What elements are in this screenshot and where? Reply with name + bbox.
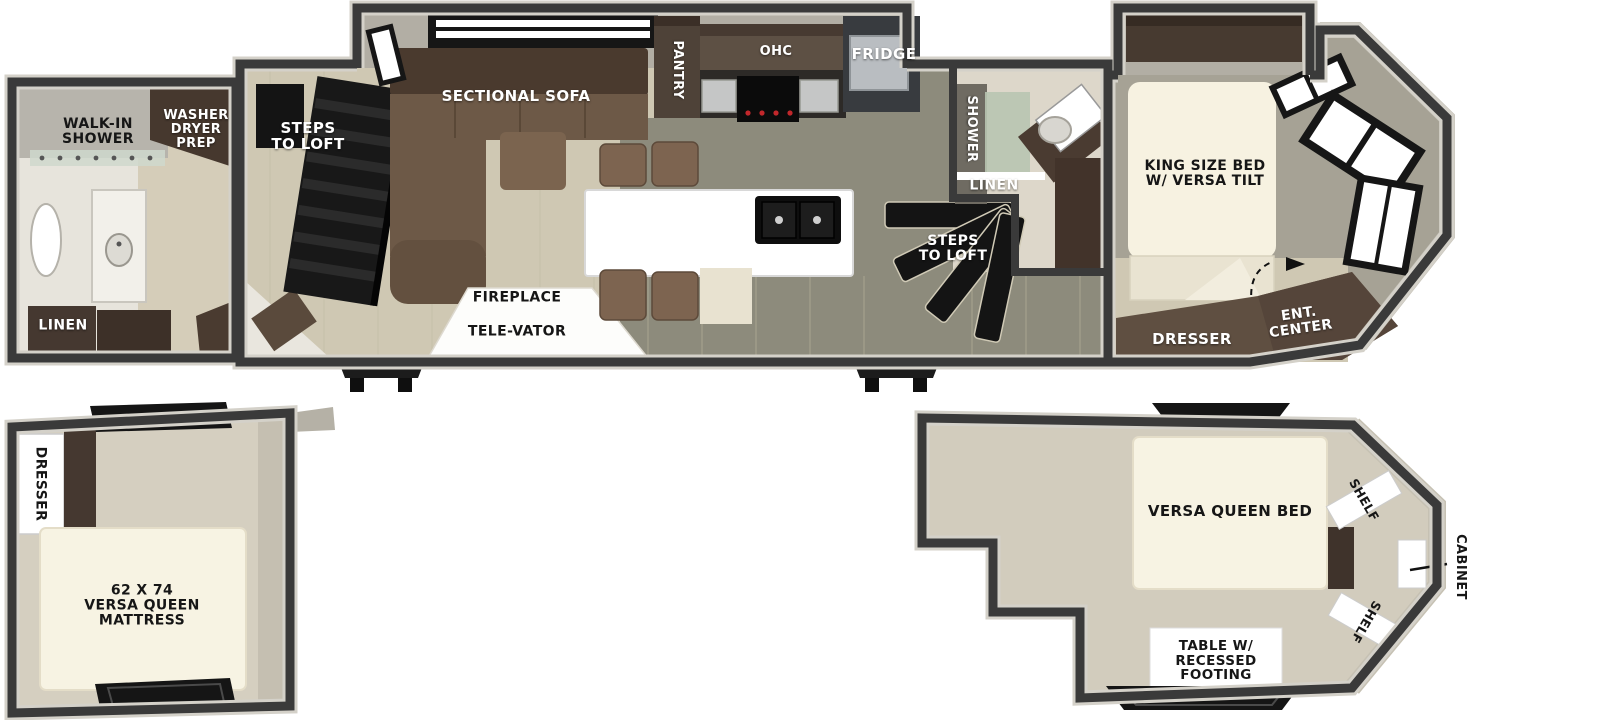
front-loft (922, 403, 1447, 710)
rv-floorplan-diagram: WALK-IN SHOWER WASHER DRYER PREP LINEN S… (0, 0, 1600, 720)
floorplan-graphic (0, 0, 1600, 720)
ottoman (500, 132, 566, 190)
sink (106, 234, 132, 266)
king-bed-mattress (1128, 82, 1276, 258)
loft-dresser (16, 434, 64, 534)
linen-cabinet (28, 306, 96, 354)
tall-cabinet (1055, 158, 1103, 270)
fridge (850, 36, 908, 90)
rear-loft (12, 402, 335, 713)
cabinet-face (1398, 540, 1426, 588)
bathtub (31, 204, 61, 276)
pantry-cabinet (654, 16, 700, 118)
main-floorplan (12, 8, 1447, 392)
loft-queen-bed (1133, 437, 1327, 589)
bath-sink (1039, 117, 1071, 143)
shower-wall (955, 84, 987, 204)
loft-mattress (40, 528, 246, 690)
